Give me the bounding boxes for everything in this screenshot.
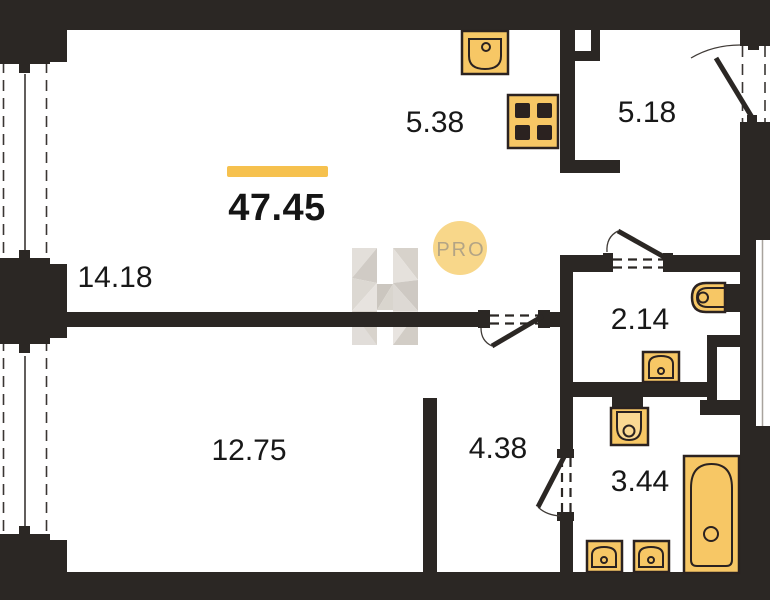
total-area-label: 47.45: [228, 187, 326, 229]
wall-corner-top-left: [0, 0, 67, 62]
room-label-corridor: 4.38: [469, 432, 527, 465]
wall-right-thin: [740, 240, 756, 426]
watermark-letter-icon: [352, 248, 418, 345]
door-icon: [538, 449, 574, 521]
wall-kitchen-right: [560, 30, 575, 173]
pro-badge: PRO: [433, 221, 487, 275]
door-icon: [603, 231, 673, 272]
wall-hall-left-upper: [560, 257, 573, 449]
wall-middle-stub: [550, 312, 573, 327]
wall-right-bottom: [740, 426, 770, 600]
window-icon: [0, 336, 50, 542]
hall-sink-icon: [643, 352, 679, 382]
stove-icon: [508, 95, 558, 148]
wall-right-mid: [740, 122, 770, 240]
wall-hall-top-left: [560, 255, 603, 272]
wall-hall-left-lower: [560, 520, 573, 575]
room-label-hall: 2.14: [611, 303, 669, 336]
room-label-living: 14.18: [77, 261, 152, 294]
door-icon: [478, 310, 550, 346]
bathroom-sink-icon: [587, 541, 622, 572]
bathroom-sink-icon: [634, 541, 669, 572]
wall-middle-horizontal: [0, 312, 478, 327]
niche-wall-bottom: [700, 400, 740, 415]
room-label-loggia: 5.18: [618, 96, 676, 129]
toilet-icon: [692, 283, 740, 312]
bathtub-icon: [684, 456, 739, 573]
toilet-icon: [611, 391, 648, 445]
total-area-accent-bar: [227, 166, 328, 177]
floor-plan: PRO 47.45: [0, 0, 770, 600]
balcony-door-icon: [691, 41, 765, 124]
shaft-wall-bottom: [575, 51, 600, 61]
window-icon: [0, 56, 50, 266]
room-label-bedroom: 12.75: [211, 434, 286, 467]
wall-kitchen-stub: [575, 160, 620, 173]
wall-bedroom-corridor: [423, 398, 437, 572]
room-label-bathroom: 3.44: [611, 465, 669, 498]
room-label-kitchen: 5.38: [406, 106, 464, 139]
wall-right-top: [740, 0, 770, 46]
wall-top: [0, 0, 770, 30]
wall-hall-top-right: [673, 255, 740, 272]
wall-bottom: [0, 572, 770, 600]
pro-badge-label: PRO: [436, 239, 485, 261]
kitchen-sink-icon: [462, 31, 508, 74]
